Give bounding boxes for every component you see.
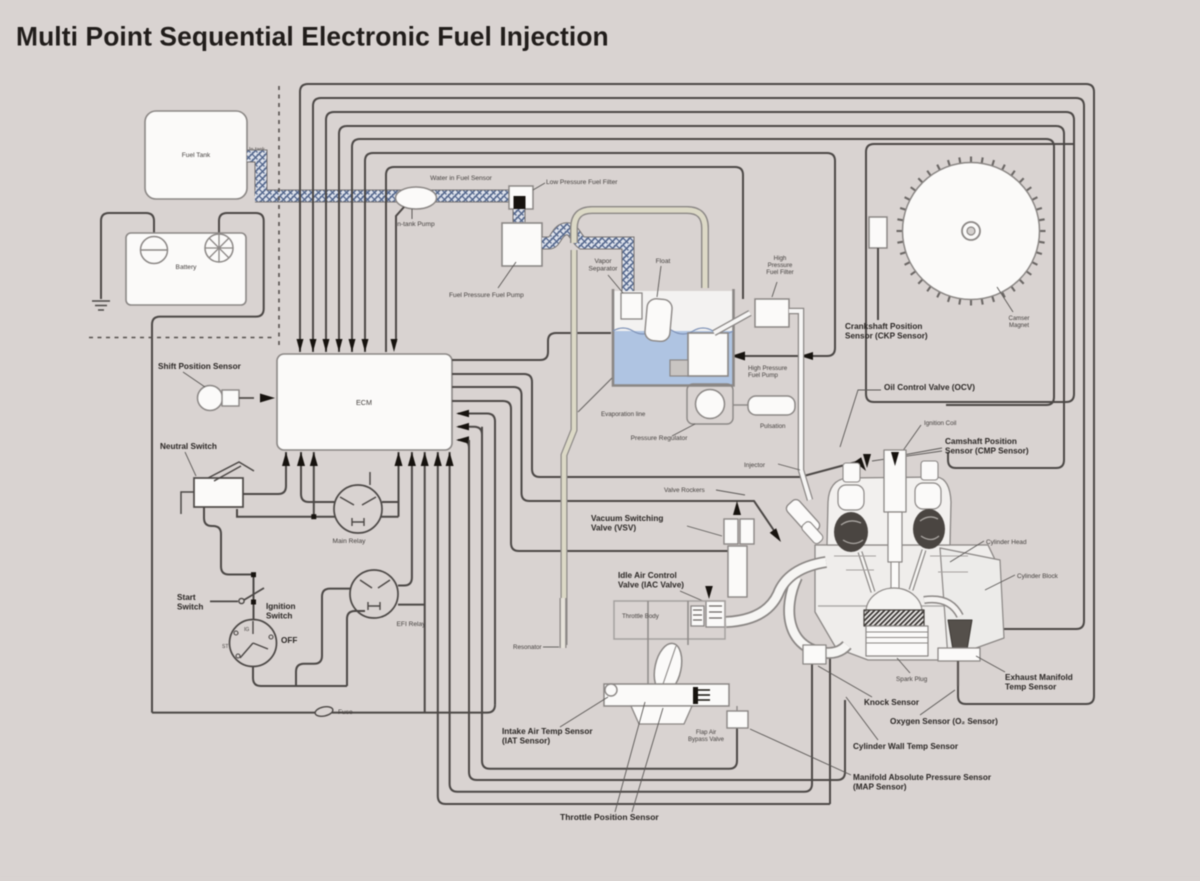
svg-text:Camshaft PositionSensor (CMP S: Camshaft PositionSensor (CMP Sensor) (945, 437, 1029, 455)
svg-text:Fuse: Fuse (338, 709, 353, 716)
svg-text:Throttle Position Sensor: Throttle Position Sensor (560, 812, 659, 822)
svg-text:Pressure Regulator: Pressure Regulator (631, 435, 689, 442)
svg-text:Float: Float (656, 258, 671, 265)
svg-text:Cylinder Wall Temp Sensor: Cylinder Wall Temp Sensor (853, 742, 959, 751)
svg-text:Fuel Tank: Fuel Tank (182, 152, 211, 159)
svg-text:Crankshaft PositionSensor (CKP: Crankshaft PositionSensor (CKP Sensor) (845, 322, 928, 340)
svg-text:Knock Sensor: Knock Sensor (864, 698, 920, 707)
svg-text:Ignition Coil: Ignition Coil (924, 420, 956, 427)
svg-text:Pulsation: Pulsation (760, 423, 786, 430)
svg-text:EFI Relay: EFI Relay (397, 621, 427, 628)
svg-text:Battery: Battery (176, 264, 198, 271)
svg-text:Oxygen Sensor (O₂ Sensor): Oxygen Sensor (O₂ Sensor) (890, 717, 998, 726)
svg-text:ECM: ECM (356, 398, 372, 407)
svg-text:Cylinder Block: Cylinder Block (1017, 573, 1059, 580)
svg-text:Spark Plug: Spark Plug (896, 676, 928, 683)
svg-text:Idle Air ControlValve (IAC Val: Idle Air ControlValve (IAC Valve) (618, 571, 684, 589)
svg-text:Multi Point Sequential Electro: Multi Point Sequential Electronic Fuel I… (16, 22, 609, 52)
svg-text:Neutral Switch: Neutral Switch (160, 442, 217, 451)
svg-text:In-tank Pump: In-tank Pump (395, 221, 435, 228)
svg-text:Cylinder Head: Cylinder Head (986, 539, 1027, 546)
svg-text:Oil Control Valve (OCV): Oil Control Valve (OCV) (884, 383, 975, 392)
svg-text:Shift Position Sensor: Shift Position Sensor (158, 362, 242, 371)
svg-text:Throttle Body: Throttle Body (622, 613, 660, 620)
svg-text:IgnitionSwitch: IgnitionSwitch (266, 602, 296, 620)
svg-text:Water in Fuel Sensor: Water in Fuel Sensor (430, 175, 492, 182)
svg-text:Valve Rockers: Valve Rockers (664, 487, 705, 494)
svg-text:OFF: OFF (281, 636, 297, 645)
svg-text:Main Relay: Main Relay (333, 538, 367, 545)
svg-text:Evaporation line: Evaporation line (601, 411, 646, 418)
svg-text:Fuel Pressure Fuel Pump: Fuel Pressure Fuel Pump (449, 292, 524, 299)
svg-text:ST: ST (222, 644, 228, 650)
svg-text:Injector: Injector (744, 462, 766, 469)
svg-text:Resonator: Resonator (513, 644, 542, 651)
svg-text:IG: IG (244, 627, 249, 633)
svg-text:Low Pressure Fuel Filter: Low Pressure Fuel Filter (546, 179, 618, 186)
svg-text:CamserMagnet: CamserMagnet (1008, 316, 1029, 329)
